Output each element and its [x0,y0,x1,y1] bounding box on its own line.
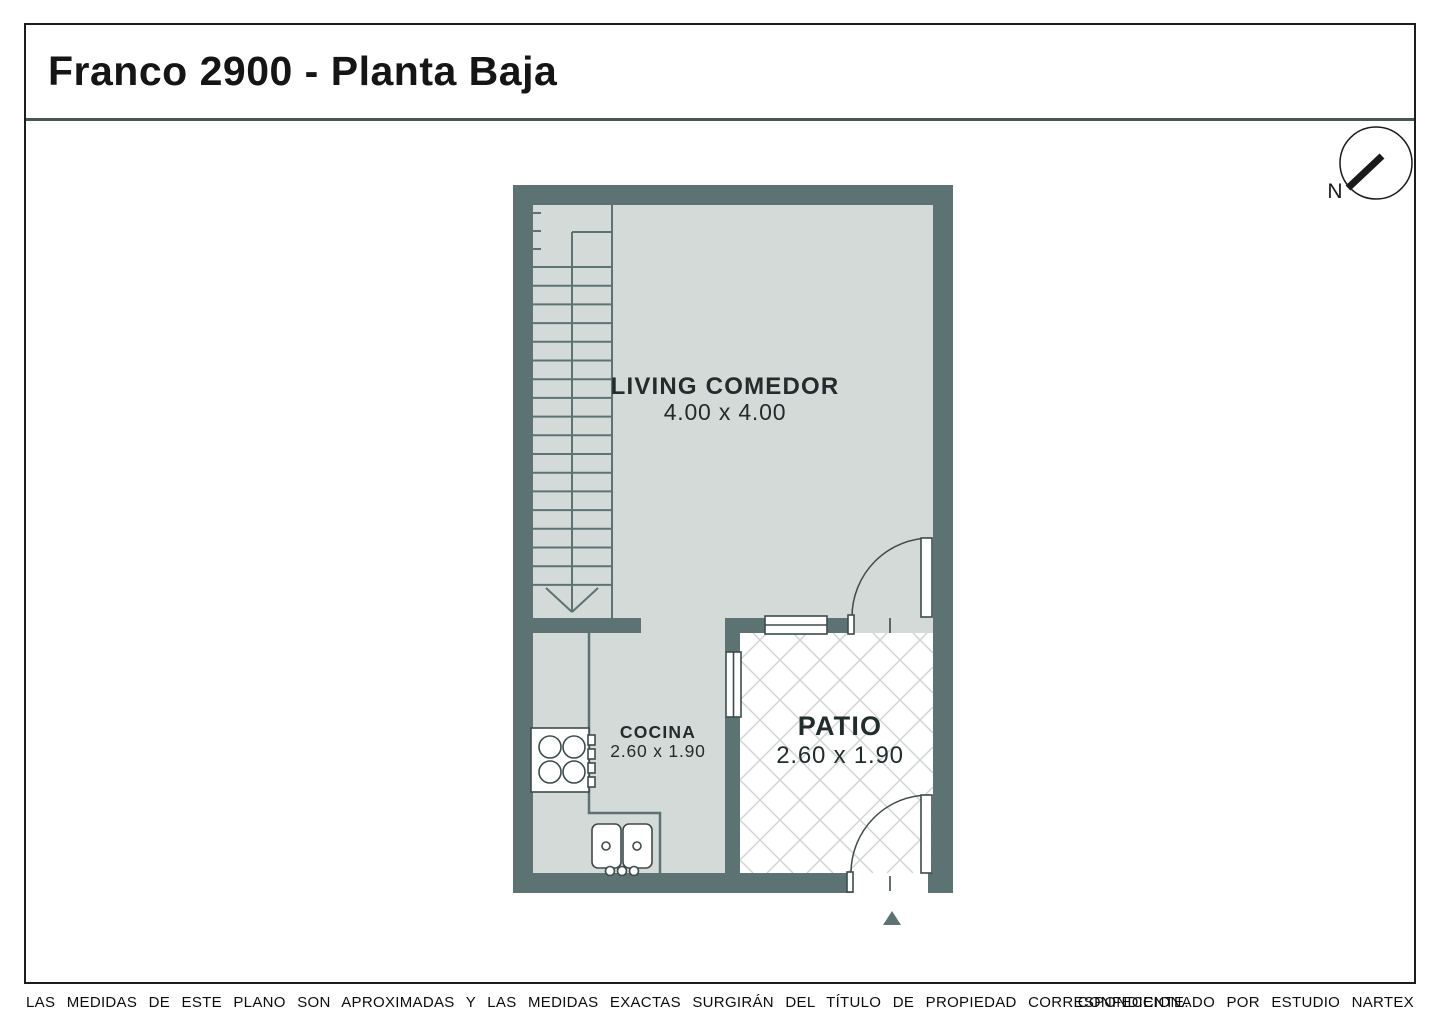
credit-text: CONFECCIONADO POR ESTUDIO NARTEX [1078,994,1414,1011]
sheet-frame: Franco 2900 - Planta Baja [24,23,1416,984]
title-band: Franco 2900 - Planta Baja [26,25,1414,121]
page-title: Franco 2900 - Planta Baja [26,48,557,95]
disclaimer-text: LAS MEDIDAS DE ESTE PLANO SON APROXIMADA… [26,994,1189,1011]
